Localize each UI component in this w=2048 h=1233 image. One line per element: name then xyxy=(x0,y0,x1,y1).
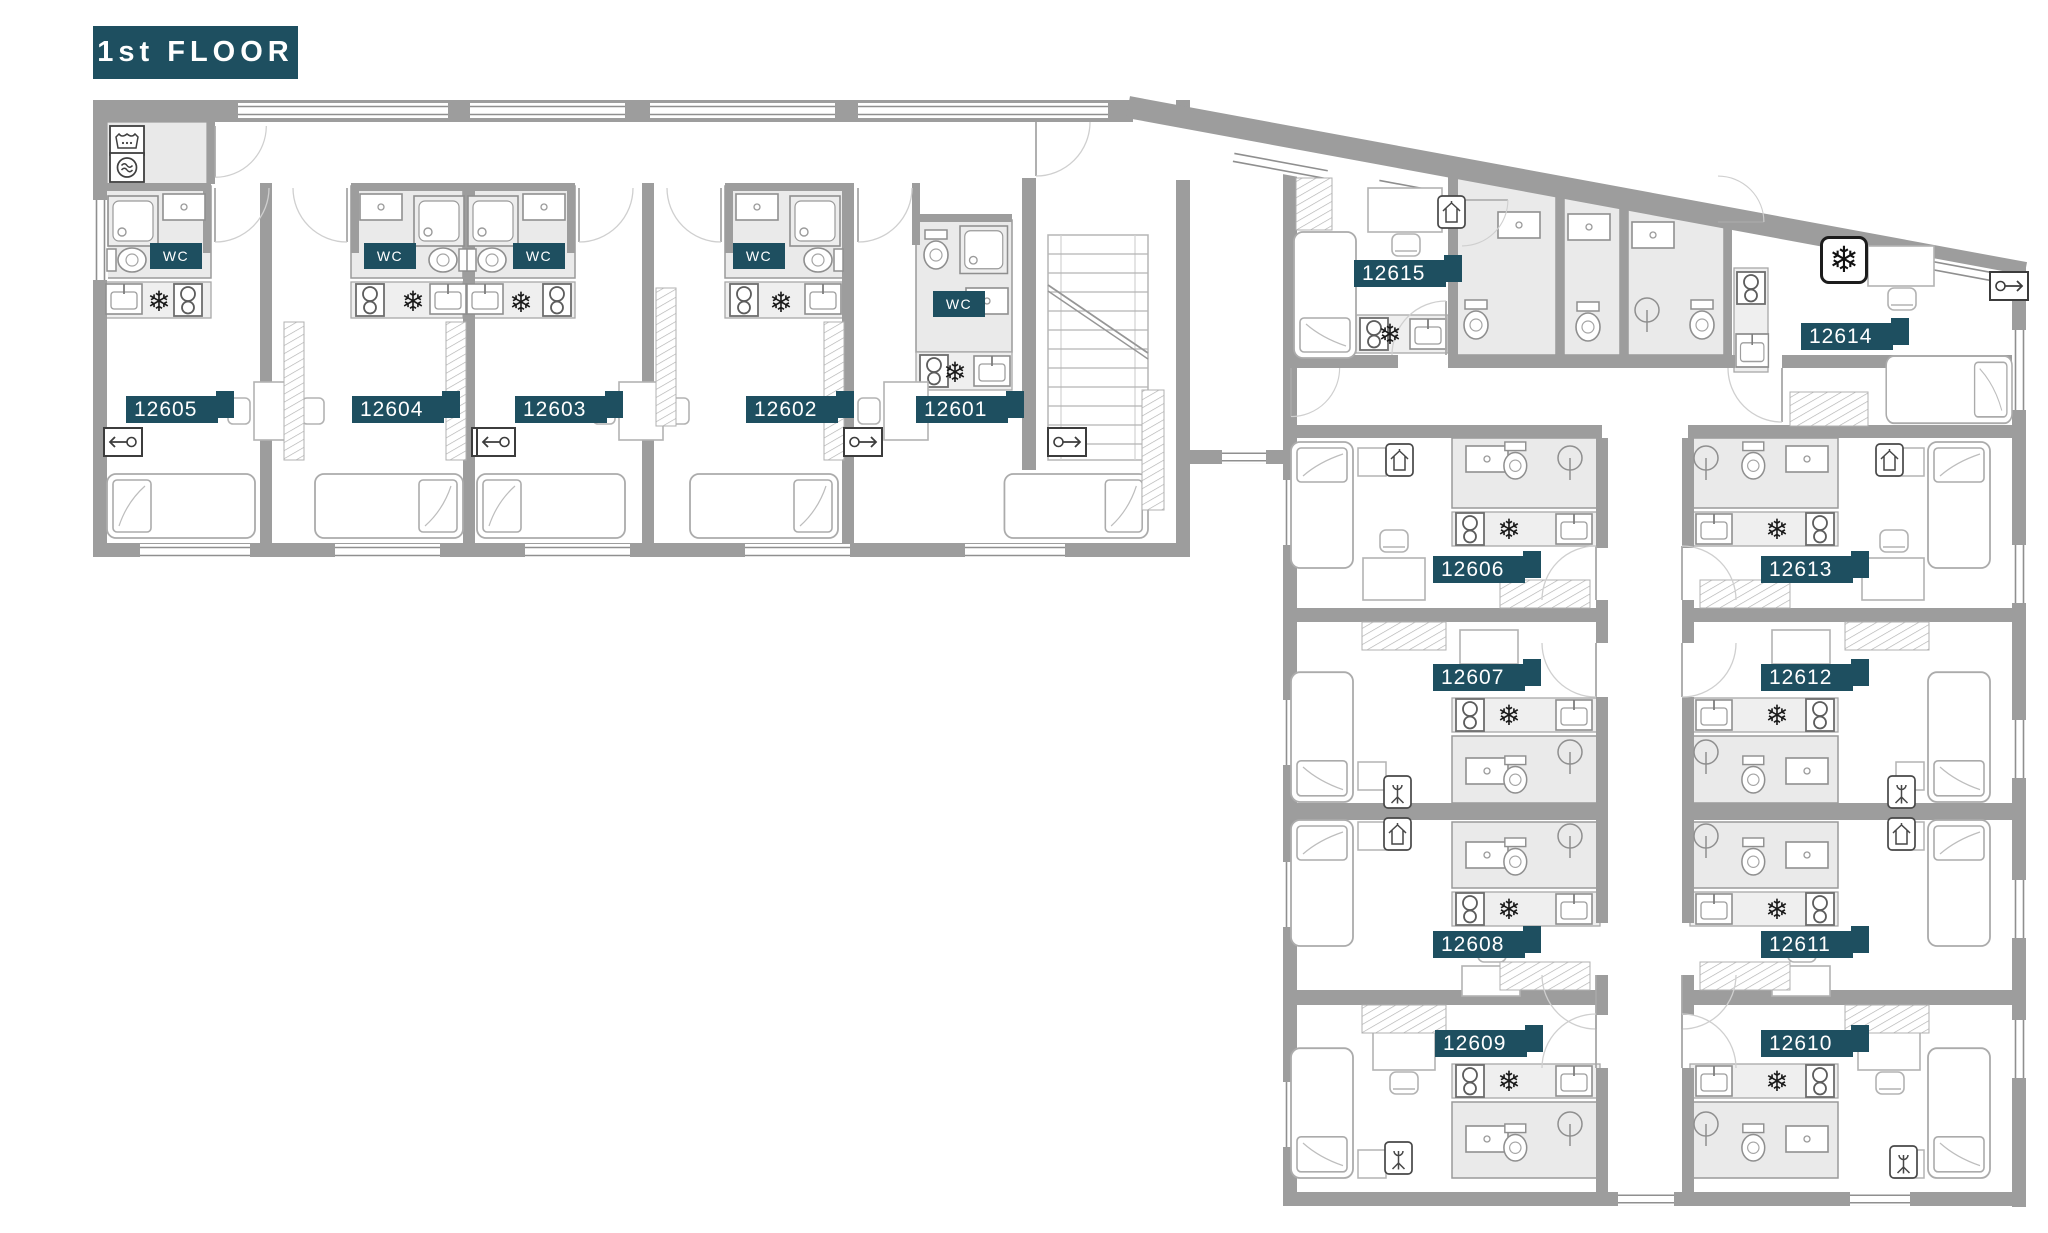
fridge-snowflake-icon: ❄ xyxy=(1492,892,1526,926)
entry-arrow-icon xyxy=(477,428,515,456)
entry-arrow-icon xyxy=(104,428,142,456)
coat-rack-icon xyxy=(1888,776,1915,808)
room-badge-12604: 12604 xyxy=(352,396,444,423)
wc-badge: WC xyxy=(364,243,416,269)
fridge-snowflake-icon: ❄ xyxy=(938,355,972,389)
room-badge-12606: 12606 xyxy=(1433,556,1525,583)
fridge-snowflake-icon: ❄ xyxy=(1492,698,1526,732)
room-badge-12601: 12601 xyxy=(916,396,1008,423)
staircase xyxy=(1048,235,1148,460)
wc-badge: WC xyxy=(513,243,565,269)
room-badge-12608: 12608 xyxy=(1433,931,1525,958)
wc-badge: WC xyxy=(733,243,785,269)
fridge-snowflake-icon: ❄ xyxy=(396,284,430,318)
floor-plan-page: 1st FLOOR 12605 12604 12603 12602 12601 … xyxy=(0,0,2048,1233)
floor-plan-drawing xyxy=(0,0,2048,1233)
closet-icon xyxy=(1384,818,1411,850)
room-badge-12607: 12607 xyxy=(1433,664,1525,691)
dryer-icon xyxy=(110,153,144,182)
room-badge-12615: 12615 xyxy=(1354,260,1446,287)
room-badge-12610: 12610 xyxy=(1761,1030,1853,1057)
entry-arrow-icon xyxy=(1990,272,2028,300)
closet-icon xyxy=(1438,196,1465,228)
bathroom-fills xyxy=(103,122,1838,1178)
fridge-snowflake-icon: ❄ xyxy=(1760,892,1794,926)
room-badge-12614: 12614 xyxy=(1801,323,1893,350)
closet-icon xyxy=(1888,818,1915,850)
fridge-icon-large: ❄ xyxy=(1820,236,1868,284)
coat-rack-icon xyxy=(1890,1146,1917,1178)
fridge-snowflake-icon: ❄ xyxy=(1760,512,1794,546)
coat-rack-icon xyxy=(1384,776,1411,808)
fridge-snowflake-icon: ❄ xyxy=(764,285,798,319)
room-badge-12611: 12611 xyxy=(1761,931,1853,958)
floor-title: 1st FLOOR xyxy=(93,26,298,79)
room-badge-12603: 12603 xyxy=(515,396,607,423)
fridge-snowflake-icon: ❄ xyxy=(1492,512,1526,546)
closet-icon xyxy=(1386,444,1413,476)
room-badge-12613: 12613 xyxy=(1761,556,1853,583)
closet-icon xyxy=(1876,444,1903,476)
wc-badge: WC xyxy=(150,243,202,269)
room-badge-12612: 12612 xyxy=(1761,664,1853,691)
room-badge-12605: 12605 xyxy=(126,396,218,423)
fridge-snowflake-icon: ❄ xyxy=(142,284,176,318)
coat-rack-icon xyxy=(1385,1142,1412,1174)
wc-badge: WC xyxy=(933,291,985,317)
entry-arrow-icon xyxy=(844,428,882,456)
fridge-snowflake-icon: ❄ xyxy=(1373,317,1407,351)
room-badge-12609: 12609 xyxy=(1435,1030,1527,1057)
fridge-snowflake-icon: ❄ xyxy=(1492,1064,1526,1098)
entry-arrow-icon xyxy=(1048,428,1086,456)
fridge-snowflake-icon: ❄ xyxy=(504,285,538,319)
fridge-snowflake-icon: ❄ xyxy=(1760,1064,1794,1098)
fridge-snowflake-icon: ❄ xyxy=(1760,698,1794,732)
washer-icon xyxy=(110,126,144,155)
room-badge-12602: 12602 xyxy=(746,396,838,423)
